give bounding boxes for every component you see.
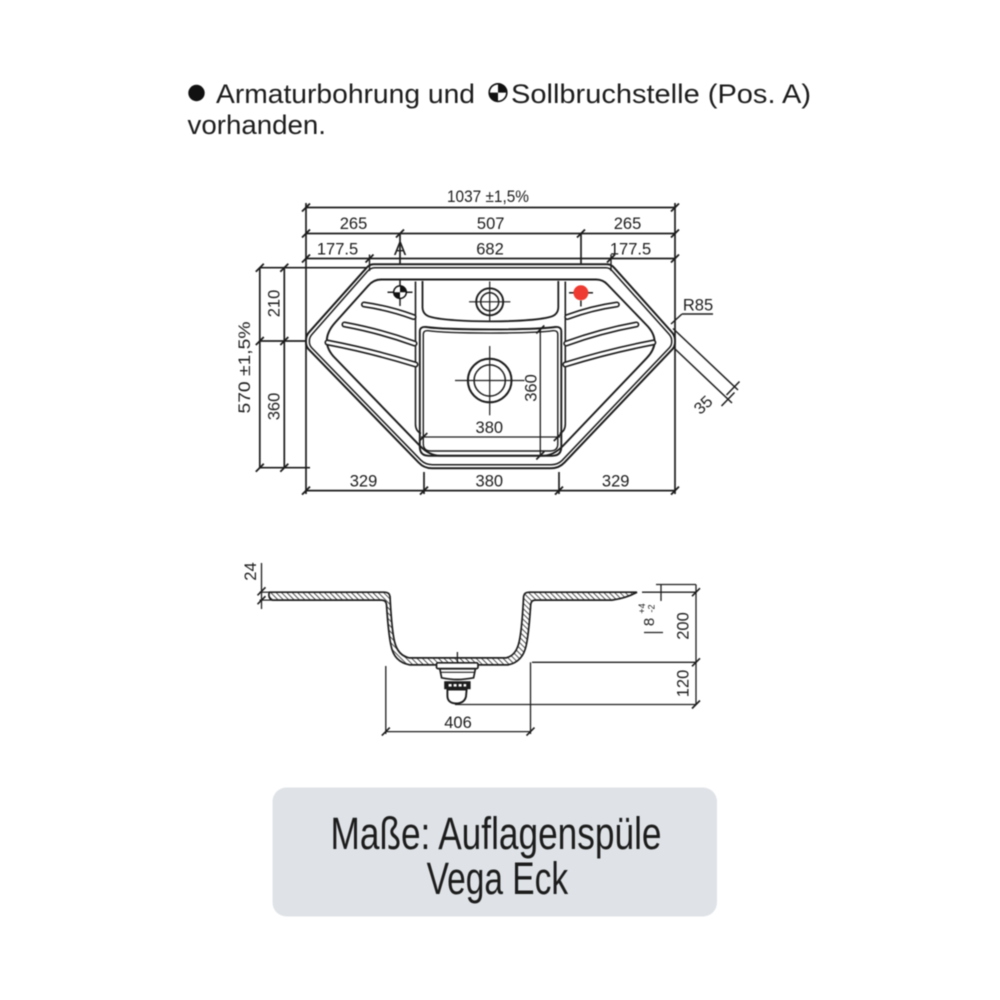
svg-text:329: 329	[350, 473, 378, 491]
svg-text:8: 8	[641, 618, 658, 626]
svg-text:Armaturbohrung und: Armaturbohrung und	[216, 79, 475, 109]
svg-text:24: 24	[242, 562, 260, 580]
svg-text:1037 ±1,5%: 1037 ±1,5%	[447, 188, 529, 206]
svg-text:570 ±1,5%: 570 ±1,5%	[236, 321, 254, 413]
svg-text:177.5: 177.5	[610, 241, 651, 259]
svg-text:360: 360	[266, 393, 284, 421]
svg-text:Sollbruchstelle (Pos. A): Sollbruchstelle (Pos. A)	[511, 79, 811, 109]
svg-text:vorhanden.: vorhanden.	[188, 110, 327, 140]
svg-text:Maße: Auflagenspüle: Maße: Auflagenspüle	[331, 808, 662, 859]
svg-text:265: 265	[340, 215, 368, 233]
svg-text:265: 265	[614, 215, 642, 233]
svg-text:682: 682	[476, 241, 504, 259]
svg-text:177.5: 177.5	[317, 241, 358, 259]
svg-text:A: A	[394, 238, 407, 259]
svg-text:-2: -2	[647, 604, 657, 612]
svg-text:329: 329	[602, 473, 630, 491]
svg-text:380: 380	[476, 473, 504, 491]
svg-text:200: 200	[675, 612, 693, 640]
svg-text:406: 406	[444, 714, 472, 732]
svg-text:+4: +4	[637, 603, 647, 613]
svg-text:380: 380	[476, 419, 504, 437]
svg-text:R85: R85	[683, 297, 713, 315]
svg-text:360: 360	[523, 374, 541, 402]
svg-text:210: 210	[266, 290, 284, 318]
svg-text:120: 120	[675, 670, 693, 698]
svg-text:507: 507	[477, 215, 505, 233]
svg-text:Vega Eck: Vega Eck	[427, 853, 569, 904]
